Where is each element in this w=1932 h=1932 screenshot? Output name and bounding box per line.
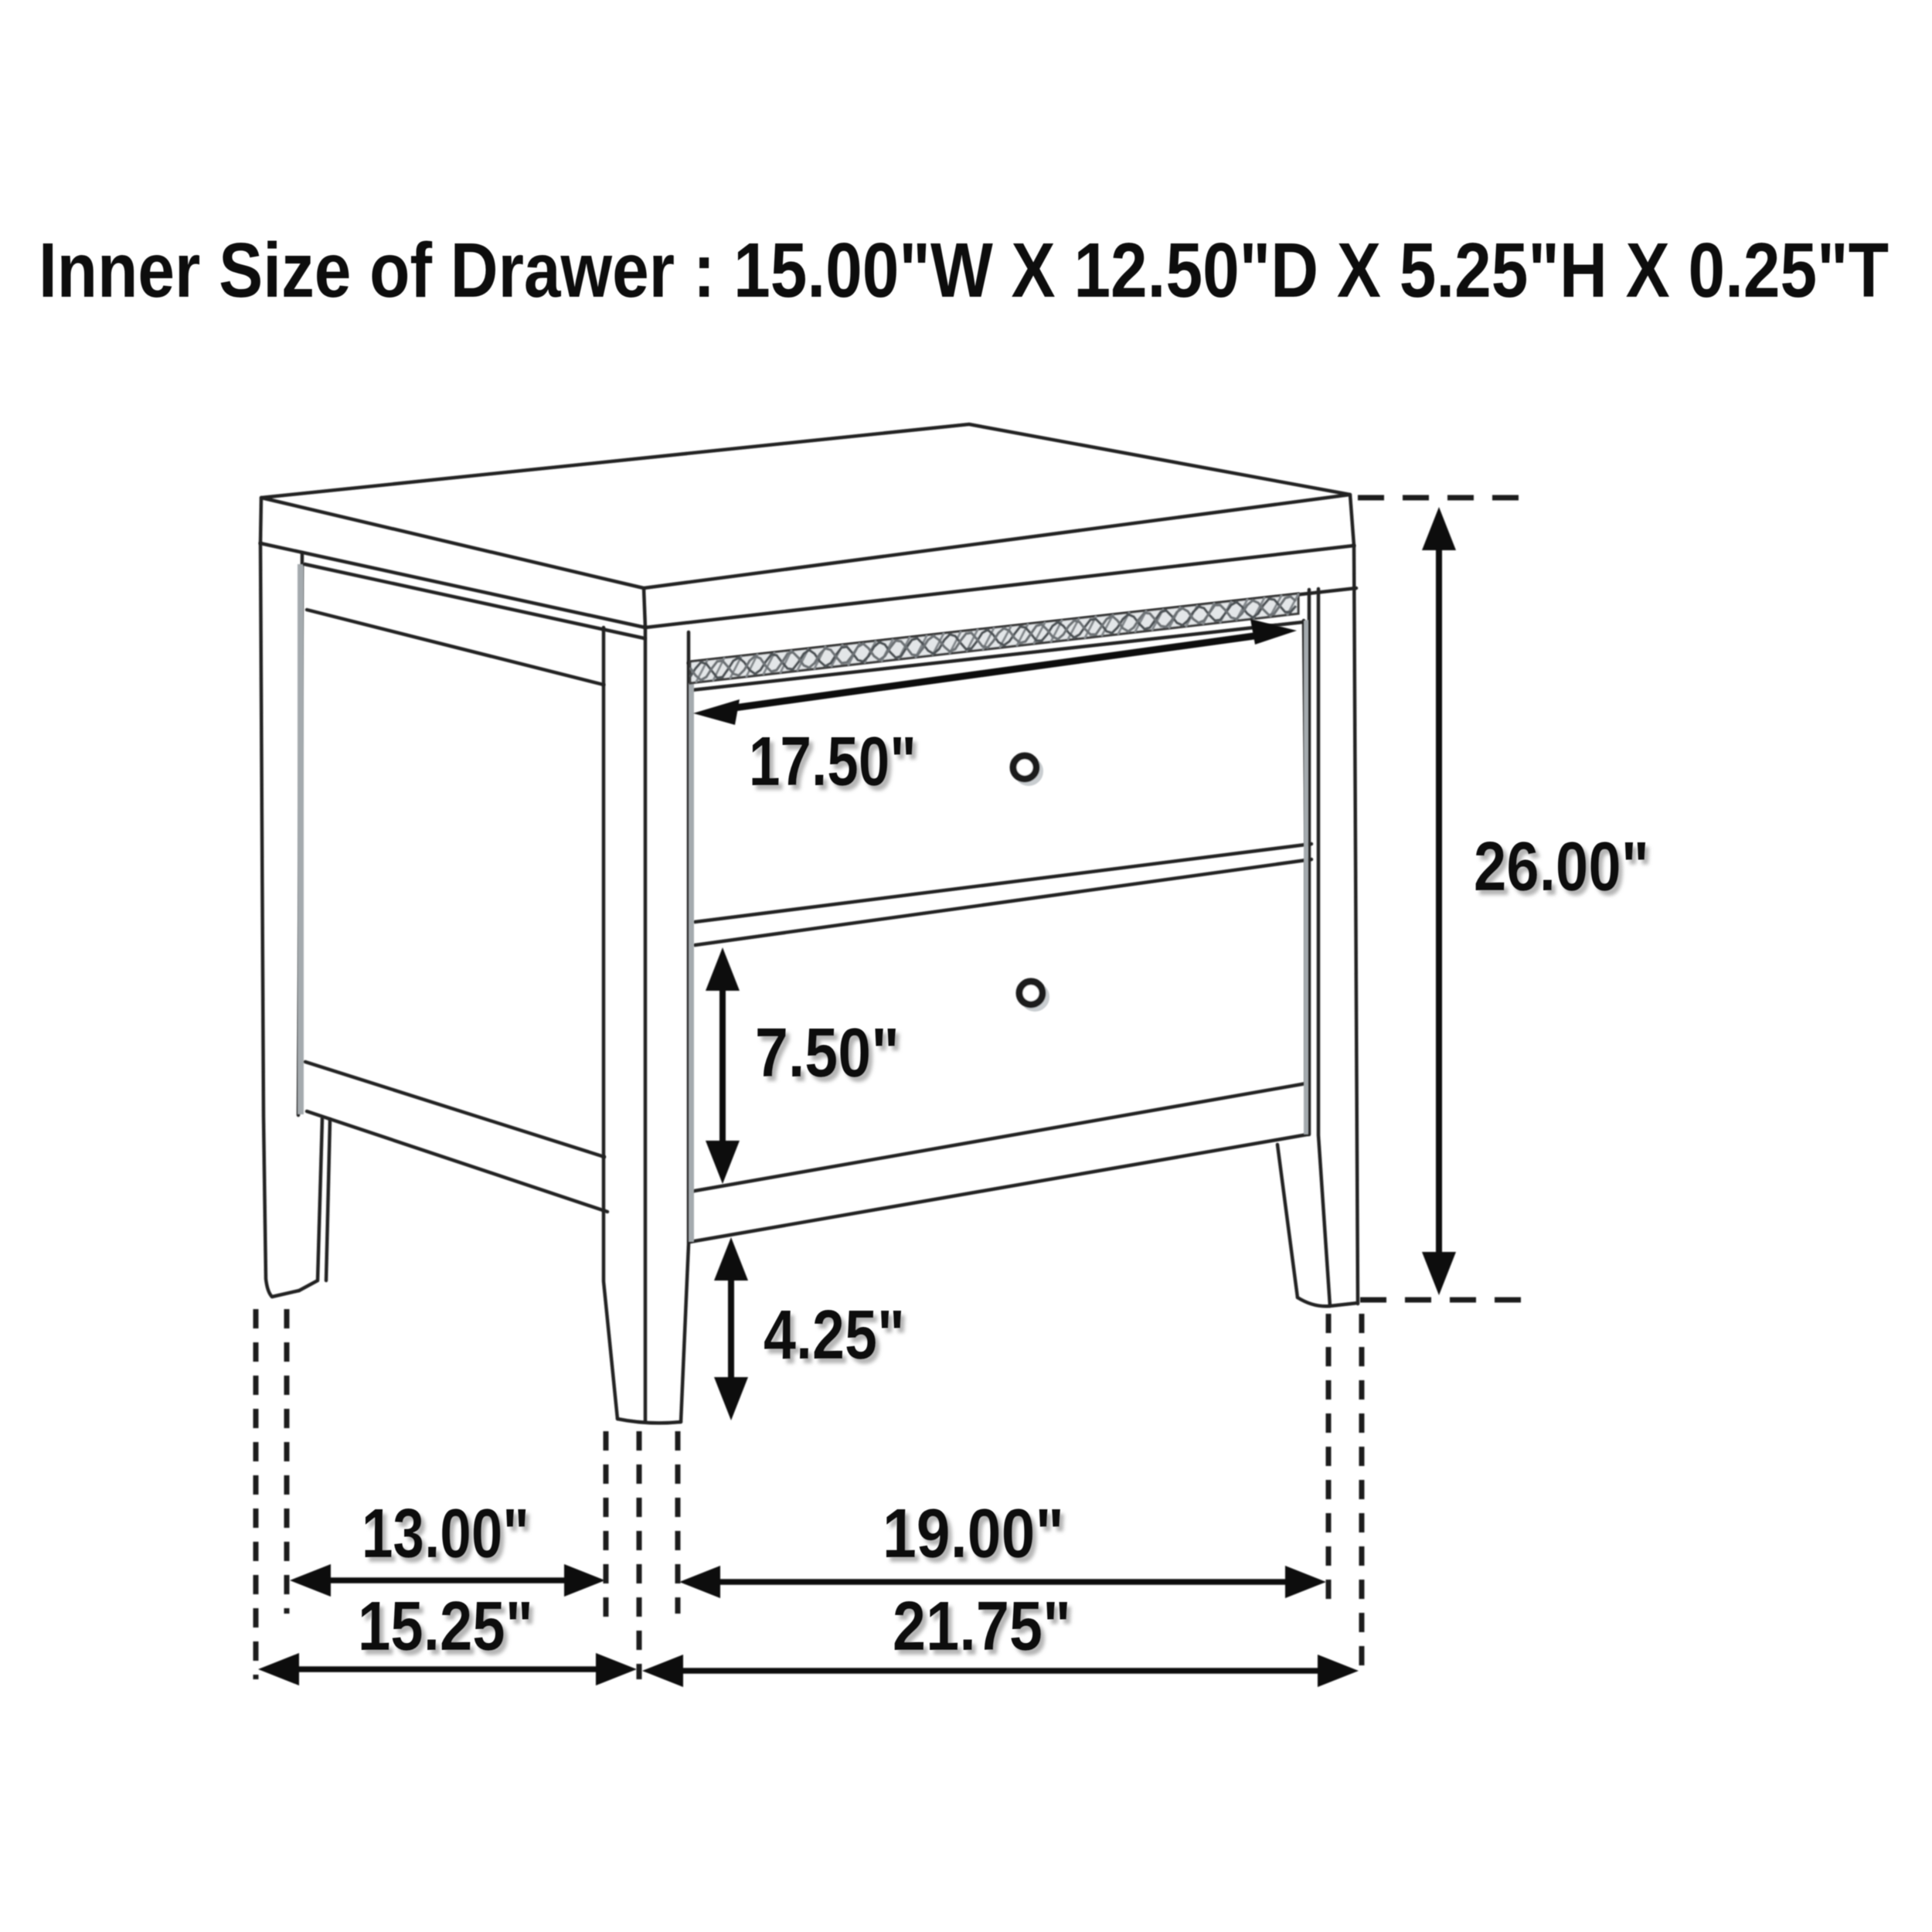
svg-text:26.00": 26.00" <box>1474 828 1649 906</box>
svg-text:19.00": 19.00" <box>883 1495 1064 1573</box>
svg-text:Inner Size of Drawer : 15.00"W: Inner Size of Drawer : 15.00"W X 12.50"D… <box>39 227 1889 314</box>
svg-text:4.25": 4.25" <box>764 1297 905 1374</box>
svg-text:7.50": 7.50" <box>755 1015 900 1092</box>
svg-text:15.25": 15.25" <box>358 1588 533 1665</box>
svg-text:17.50": 17.50" <box>749 723 917 801</box>
svg-text:21.75": 21.75" <box>893 1588 1071 1665</box>
svg-text:13.00": 13.00" <box>362 1495 529 1573</box>
